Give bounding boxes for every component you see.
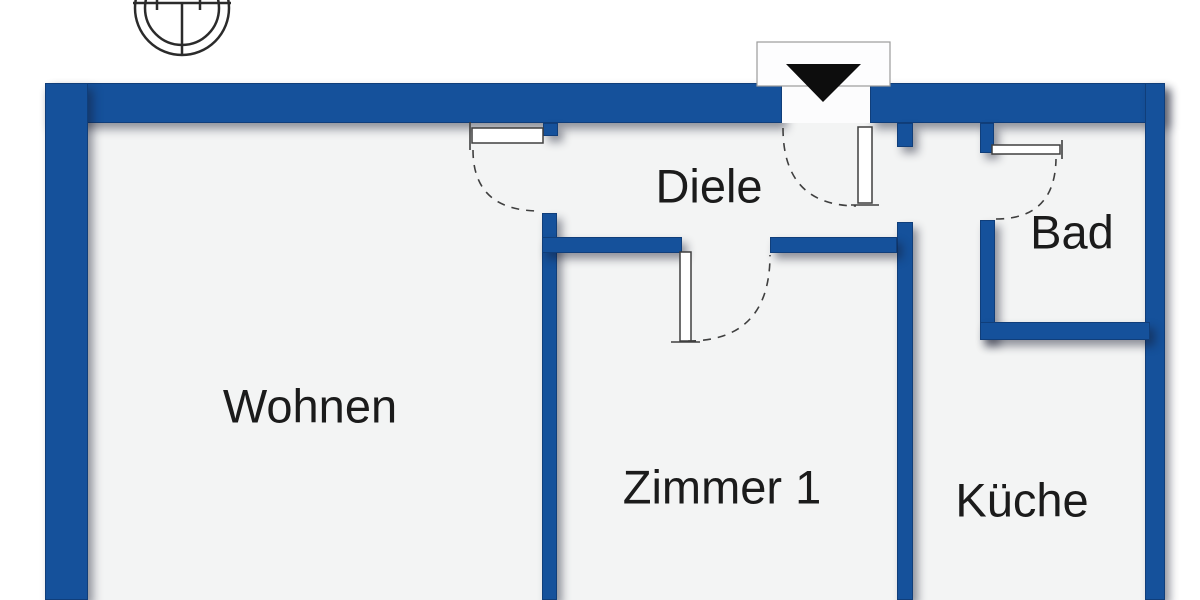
wall-stub-wohnen-door — [543, 123, 558, 136]
room-label-bad: Bad — [1030, 209, 1114, 256]
wall-exterior-top-right-segment — [870, 83, 1165, 123]
room-label-zimmer1: Zimmer 1 — [623, 464, 821, 511]
wall-wohnen-zimmer1-divider — [542, 213, 557, 600]
wall-bad-bottom — [980, 322, 1150, 340]
compass-icon — [133, 0, 231, 55]
wall-stub-bad-door — [980, 123, 994, 153]
wall-exterior-left — [45, 83, 88, 600]
wall-diele-zimmer1-right-segment — [770, 237, 897, 253]
wall-exterior-right — [1145, 83, 1165, 600]
wall-stub-diele-kueche — [897, 123, 913, 147]
room-label-wohnen: Wohnen — [223, 383, 397, 430]
entrance-marker-box — [757, 42, 890, 86]
wall-zimmer1-kueche-divider — [897, 222, 913, 600]
floor-plan: Wohnen Diele Zimmer 1 Bad Küche — [0, 0, 1200, 600]
room-label-kueche: Küche — [955, 477, 1088, 524]
wall-diele-zimmer1-left-segment — [542, 237, 682, 253]
wall-exterior-top-left-segment — [45, 83, 782, 123]
room-label-diele: Diele — [655, 163, 762, 210]
